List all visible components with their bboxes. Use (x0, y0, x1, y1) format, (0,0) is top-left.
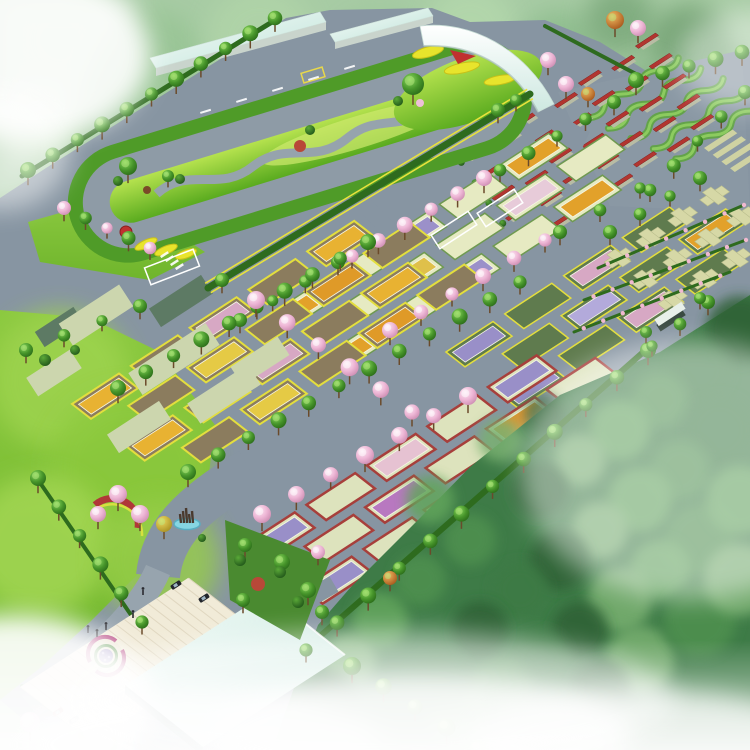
tree-highlight (81, 213, 87, 219)
tree-highlight (302, 584, 309, 591)
tree-highlight (630, 74, 637, 81)
sculpture-figure (189, 514, 190, 523)
tree-highlight (268, 296, 273, 301)
hedge-blossom (629, 280, 633, 284)
tree-highlight (484, 294, 491, 301)
tree-highlight (363, 362, 370, 369)
hedge-blossom (725, 245, 729, 249)
tree-highlight (317, 607, 323, 613)
tree-highlight (111, 487, 119, 495)
bush (39, 354, 51, 366)
tree-highlight (221, 43, 227, 49)
tree-highlight (636, 184, 641, 189)
pedestrian-head (142, 587, 145, 590)
tree-highlight (347, 251, 353, 257)
tree-highlight (425, 329, 431, 335)
tree-highlight (695, 173, 701, 179)
tree-highlight (425, 535, 432, 542)
tree-highlight (385, 573, 391, 579)
tree-highlight (182, 466, 189, 473)
tree-highlight (416, 307, 423, 314)
sculpture-figure (180, 514, 181, 523)
bush (70, 345, 80, 355)
tree-highlight (657, 68, 664, 75)
forest-tree-mass (478, 418, 522, 462)
tree-highlight (169, 351, 175, 357)
tree-highlight (121, 159, 129, 167)
tree-highlight (666, 192, 671, 197)
tree-highlight (238, 595, 244, 601)
tree-highlight (540, 235, 546, 241)
tree-highlight (195, 58, 202, 65)
tree-highlight (669, 160, 675, 166)
tree-highlight (279, 285, 286, 292)
tree-highlight (145, 243, 151, 249)
tree-highlight (170, 73, 177, 80)
pedestrian-head (96, 629, 99, 632)
tree-highlight (98, 316, 103, 321)
pedestrian-head (87, 625, 90, 628)
hedge-blossom (621, 311, 625, 315)
tree-highlight (243, 433, 249, 439)
tree-highlight (454, 311, 461, 318)
hedge-blossom (722, 211, 726, 215)
tree-highlight (301, 277, 307, 283)
sculpture-figure (186, 508, 187, 523)
hedge-blossom (649, 273, 653, 277)
tree-highlight (255, 507, 263, 515)
tree-highlight (399, 219, 406, 226)
tree-highlight (307, 269, 314, 276)
tree-highlight (696, 294, 701, 299)
tree-highlight (273, 414, 280, 421)
tree-highlight (555, 227, 561, 233)
hedge-blossom (660, 296, 664, 300)
tree-highlight (583, 89, 589, 95)
bush (198, 534, 206, 542)
tree-highlight (103, 224, 108, 229)
tree-highlight (240, 540, 246, 546)
hedge-blossom (668, 266, 672, 270)
scene-canvas (0, 0, 750, 750)
bush (292, 596, 304, 608)
tree-highlight (595, 205, 601, 211)
tree-highlight (195, 333, 202, 340)
bush (175, 174, 185, 184)
hedge-blossom (644, 245, 648, 249)
hedge-blossom (683, 228, 687, 232)
sculpture-figure (183, 511, 184, 523)
tree-highlight (493, 105, 499, 111)
tree-highlight (393, 429, 400, 436)
tree-highlight (244, 27, 251, 34)
tree-highlight (375, 383, 382, 390)
tree-highlight (217, 275, 223, 281)
tree-highlight (428, 410, 435, 417)
hedge-blossom (625, 253, 629, 257)
tree-highlight (59, 331, 65, 337)
tree-highlight (455, 508, 462, 515)
tree-highlight (290, 488, 297, 495)
tree-highlight (53, 501, 60, 508)
tree-highlight (362, 589, 369, 596)
hedge-blossom (640, 304, 644, 308)
tree-highlight (394, 563, 400, 569)
tree-highlight (281, 316, 288, 323)
hedge-blossom (679, 289, 683, 293)
tree-highlight (405, 76, 415, 86)
tree-highlight (495, 165, 501, 171)
pedestrian-head (105, 622, 108, 625)
tree-highlight (717, 112, 723, 118)
tree-highlight (164, 172, 169, 177)
tree-highlight (488, 481, 494, 487)
tree-highlight (605, 227, 611, 233)
tree-highlight (303, 397, 310, 404)
tree-highlight (693, 137, 698, 142)
tree-highlight (158, 518, 165, 525)
tree-highlight (94, 558, 101, 565)
tree-highlight (509, 253, 516, 260)
sculpture-figure (192, 511, 193, 523)
tree-highlight (447, 289, 453, 295)
tree-highlight (332, 617, 339, 624)
hedge-blossom (744, 238, 748, 242)
tree-highlight (224, 318, 231, 325)
hedge-blossom (703, 220, 707, 224)
tree-highlight (335, 253, 341, 259)
tree-highlight (477, 270, 484, 277)
tree-highlight (635, 209, 641, 215)
tree-highlight (384, 324, 391, 331)
tree-highlight (515, 277, 521, 283)
tree-highlight (276, 556, 283, 563)
tree-highlight (632, 22, 639, 29)
tree-highlight (75, 531, 81, 537)
tree-highlight (137, 617, 143, 623)
red-bush (251, 577, 265, 591)
tree-highlight (512, 96, 517, 101)
tree-highlight (116, 588, 123, 595)
tree-highlight (72, 135, 78, 141)
tree-highlight (452, 188, 459, 195)
hedge-blossom (610, 287, 614, 291)
tree-highlight (21, 345, 27, 351)
hedge-blossom (742, 203, 746, 207)
tree-highlight (325, 469, 332, 476)
tree-highlight (140, 366, 147, 373)
tree-highlight (523, 148, 529, 154)
tree-highlight (608, 13, 616, 21)
tree-highlight (560, 78, 567, 85)
forest-tree-mass (406, 476, 454, 524)
bush (143, 186, 151, 194)
tree-highlight (675, 319, 681, 325)
forest-tree-mass (492, 562, 548, 618)
tree-highlight (362, 236, 369, 243)
hedge-blossom (699, 281, 703, 285)
bush (393, 96, 403, 106)
tree-highlight (426, 204, 432, 210)
tree-highlight (645, 185, 651, 191)
hedge-blossom (664, 236, 668, 240)
bush (305, 125, 315, 135)
bush (113, 176, 123, 186)
tree-highlight (112, 382, 119, 389)
tree-highlight (313, 339, 320, 346)
tree-highlight (313, 547, 319, 553)
pink-bush (416, 99, 424, 107)
tree-highlight (270, 13, 277, 20)
tree-highlight (542, 54, 549, 61)
hedge-blossom (706, 252, 710, 256)
tree-highlight (581, 114, 587, 120)
tree-highlight (135, 301, 141, 307)
tree-highlight (249, 293, 257, 301)
tree-highlight (133, 507, 141, 515)
tree-highlight (609, 97, 615, 103)
tree-highlight (461, 389, 469, 397)
hedge-blossom (687, 259, 691, 263)
tree-highlight (92, 508, 99, 515)
tree-highlight (147, 89, 153, 95)
masterplan-render (0, 0, 750, 750)
bush (234, 554, 246, 566)
tree-highlight (213, 449, 220, 456)
bush (274, 566, 286, 578)
hedge-blossom (582, 326, 586, 330)
tree-highlight (32, 472, 39, 479)
tree-highlight (394, 346, 401, 353)
tree-highlight (343, 360, 351, 368)
red-bush (294, 140, 306, 152)
hedge-blossom (591, 294, 595, 298)
tree-highlight (358, 448, 366, 456)
tree-highlight (478, 172, 485, 179)
tree-highlight (59, 203, 65, 209)
hedge-blossom (606, 262, 610, 266)
hedge-blossom (601, 319, 605, 323)
tree-highlight (642, 328, 647, 333)
tree-highlight (123, 233, 129, 239)
hedge-blossom (718, 274, 722, 278)
tree-highlight (334, 381, 340, 387)
tree-highlight (406, 406, 413, 413)
pedestrian-head (132, 610, 135, 613)
tree-highlight (553, 132, 558, 137)
